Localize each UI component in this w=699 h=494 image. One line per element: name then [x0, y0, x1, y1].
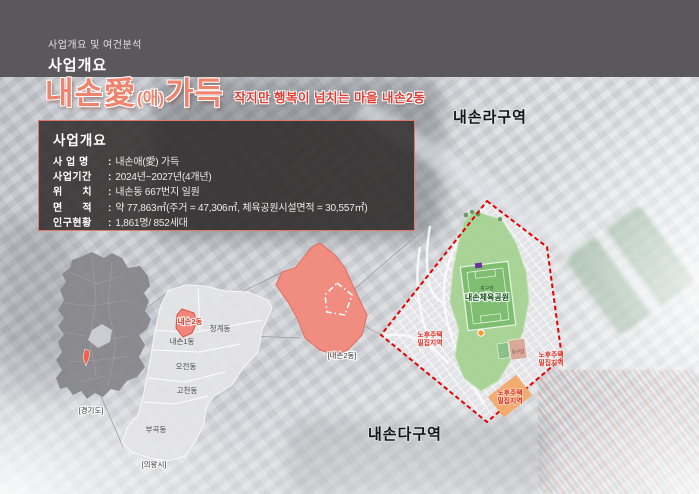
hero-title-rest: 가득 — [165, 78, 224, 109]
hero-subtitle: 작지만 행복이 넘치는 마을 내손2동 — [234, 87, 425, 106]
hero-title-main: 내손愛 — [45, 78, 136, 109]
header-band: 사업개요 및 여건분석 사업개요 — [0, 0, 699, 77]
info-value: 1,861명/ 852세대 — [115, 218, 187, 229]
orange-point-marker — [478, 330, 484, 336]
aging-housing-text: 밀집지역 — [538, 358, 563, 367]
naeson2-polygon — [276, 243, 367, 355]
info-label: 사업기간 — [53, 170, 108, 185]
info-value: 2024년~2027년(4개년) — [115, 172, 211, 183]
info-row-name: 사 업 명:내손애(愛) 가득 — [53, 155, 402, 170]
info-box-title: 사업개요 — [53, 129, 402, 149]
aging-housing-text: 노후주택 — [497, 388, 522, 397]
info-row-period: 사업기간:2024년~2027년(4개년) — [53, 170, 402, 185]
info-value: 내손동 667번지 일원 — [115, 187, 199, 198]
hero-title-paren: (애) — [136, 90, 165, 109]
park-name-label: 내손체육공원 — [465, 292, 509, 302]
basketball-court-label: 농구장 — [512, 348, 524, 355]
soccer-field-label: 축구장 — [480, 285, 494, 292]
district-label-naeson1: 내손1동 — [170, 337, 195, 346]
breadcrumb: 사업개요 및 여건분석 — [48, 36, 699, 51]
purple-facility-marker — [475, 263, 483, 269]
naeson2-enlarged-label: [내손2동] — [327, 351, 356, 360]
aging-housing-text: 밀집지역 — [417, 338, 442, 347]
page-title: 사업개요 — [48, 54, 699, 75]
zone-label-naeson-ra: 내손라구역 — [453, 109, 527, 126]
info-label: 사 업 명 — [53, 155, 108, 170]
info-row-population: 인구현황:1,861명/ 852세대 — [53, 216, 402, 231]
gyeonggi-province-map: [경기도] — [56, 252, 151, 415]
hero-title: 내손愛 (애) 가득 작지만 행복이 넘치는 마을 내손2동 — [45, 78, 425, 109]
naeson2-enlarged-shape: [내손2동] — [276, 243, 367, 360]
info-label: 면 적 — [53, 201, 108, 216]
project-overview-box: 사업개요 사 업 명:내손애(愛) 가득 사업기간:2024년~2027년(4개… — [38, 120, 415, 231]
aging-housing-label-left: 노후주택 밀집지역 — [417, 330, 442, 347]
aging-housing-text: 노후주택 — [538, 350, 563, 359]
district-label-gocheon: 고천동 — [177, 385, 198, 395]
city-label: [의왕시] — [142, 459, 167, 469]
info-label: 위 치 — [53, 185, 108, 200]
aging-housing-text: 노후주택 — [417, 330, 442, 339]
info-row-area: 면 적:약 77,863㎡(주거 = 47,306㎡, 체육공원시설면적 = 3… — [53, 201, 402, 216]
province-label: [경기도] — [79, 405, 104, 415]
tennis-court — [497, 343, 510, 359]
district-label-cheonggye: 청계동 — [210, 323, 231, 333]
info-value: 약 77,863㎡(주거 = 47,306㎡, 체육공원시설면적 = 30,55… — [115, 203, 367, 214]
aging-housing-label-right: 노후주택 밀집지역 — [538, 350, 563, 367]
info-value: 내손애(愛) 가득 — [115, 157, 179, 168]
district-label-naeson2: 내손2동 — [178, 316, 203, 326]
district-label-ojeon: 오전동 — [176, 361, 197, 371]
detail-plan-map: 축구장 내손체육공원 농구장 노후주택 밀집지역 노후주택 밀집지역 노후주택 … — [381, 201, 564, 422]
info-row-location: 위 치:내손동 667번지 일원 — [53, 185, 402, 200]
slide: 사업개요 및 여건분석 사업개요 내손愛 (애) 가득 작지만 행복이 넘치는 … — [0, 0, 699, 494]
district-label-bugok: 부곡동 — [146, 425, 167, 434]
aging-housing-text: 밀집지역 — [497, 396, 522, 405]
zone-label-naeson-da: 내손다구역 — [368, 426, 442, 443]
info-label: 인구현황 — [53, 216, 108, 231]
